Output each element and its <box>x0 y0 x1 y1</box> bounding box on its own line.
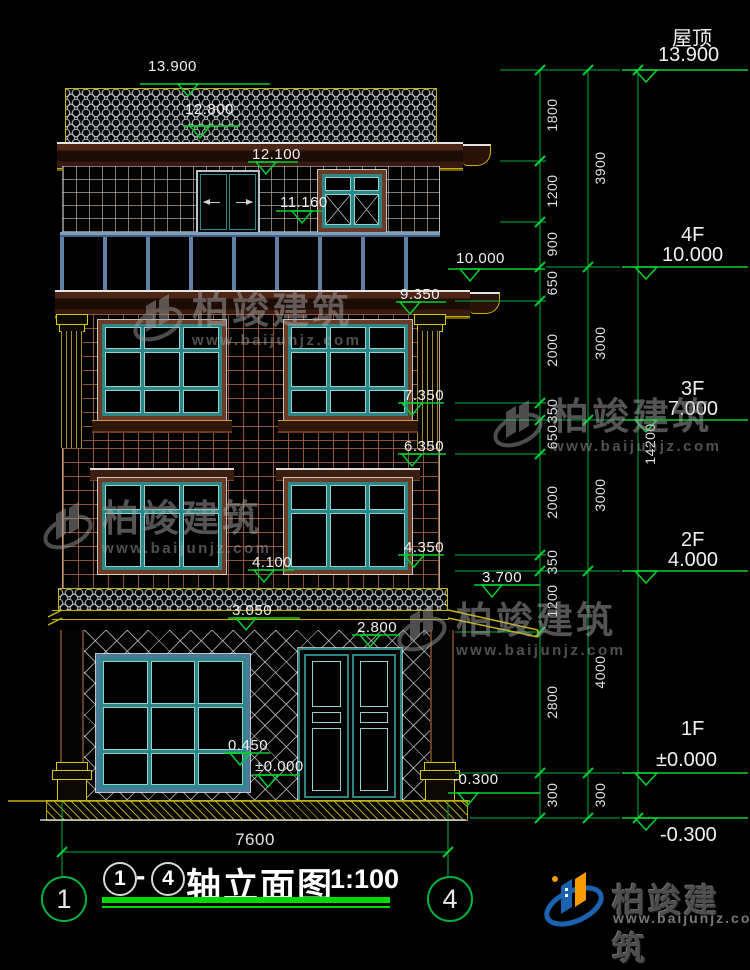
elev-label-minus0300: -0.300 <box>453 771 499 788</box>
grid-bubble-1: 1 <box>41 876 87 922</box>
dim-outer-3: 4000 <box>592 655 608 688</box>
elev-label-3050: 3.050 <box>232 602 272 619</box>
dim-inner-7: 2000 <box>544 485 560 518</box>
title-underline-thick <box>102 897 390 903</box>
floor-ground-elev: -0.300 <box>660 824 717 847</box>
grid-bubble-4: 4 <box>427 876 473 922</box>
dim-inner-10: 2800 <box>544 685 560 718</box>
title-axis-end: 4 <box>151 862 185 896</box>
elev-label-2800: 2.800 <box>357 619 397 636</box>
watermark-1: 柏竣建筑 www.baijunjz.com <box>132 290 361 350</box>
title-axis-dash: - <box>136 860 145 892</box>
watermark-3: 柏竣建筑 www.baijunjz.com <box>42 498 271 558</box>
dim-inner-8: 350 <box>544 550 560 575</box>
dim-outer-4: 300 <box>592 783 608 808</box>
dim-outer-1: 3000 <box>592 326 608 359</box>
dim-inner-3: 650 <box>544 271 560 296</box>
elev-label-9350: 9.350 <box>400 286 440 303</box>
title-axis-start: 1 <box>103 862 137 896</box>
floor-2f-elev: 4.000 <box>668 549 718 572</box>
elev-label-4350: 4.350 <box>404 539 444 556</box>
watermark-4: 柏竣建筑 www.baijunjz.com <box>396 600 625 660</box>
floor-1f-name: 1F <box>681 718 704 741</box>
dim-inner-11: 300 <box>544 783 560 808</box>
elev-label-11160: 11.160 <box>280 194 328 211</box>
drawing-scale: 1:100 <box>330 864 399 895</box>
floor-4f-elev: 10.000 <box>662 244 723 267</box>
floor-roof-elev: 13.900 <box>658 44 719 67</box>
dim-inner-4: 2000 <box>544 333 560 366</box>
watermark-logo-icon <box>492 396 544 456</box>
elev-label-3700: 3.700 <box>482 569 522 586</box>
elev-label-7350: 7.350 <box>404 387 444 404</box>
watermark-logo-icon <box>132 290 184 350</box>
dim-inner-0: 1800 <box>544 98 560 131</box>
title-underline-thin <box>102 906 390 908</box>
watermark-logo-icon <box>396 600 448 660</box>
dim-outer-2: 3000 <box>592 478 608 511</box>
elev-label-6350: 6.350 <box>404 438 444 455</box>
dimension-linework <box>0 0 750 941</box>
cad-elevation-canvas: { "drawing": { "title_block": {"axis_sta… <box>0 0 750 941</box>
dim-bottom-width: 7600 <box>235 830 275 850</box>
elev-label-10000: 10.000 <box>456 250 505 267</box>
elev-label-12100: 12.100 <box>252 146 301 163</box>
dim-outer-0: 3900 <box>592 151 608 184</box>
brand-logo-url: www.baijunjz.com <box>613 910 750 926</box>
brand-logo-icon <box>542 868 606 932</box>
watermark-2: 柏竣建筑 www.baijunjz.com <box>492 396 721 456</box>
dim-inner-2: 900 <box>544 232 560 257</box>
elev-label-12800: 12.800 <box>185 101 234 118</box>
floor-1f-elev: ±0.000 <box>656 749 717 772</box>
dim-inner-1: 1200 <box>544 174 560 207</box>
watermark-logo-icon <box>42 498 94 558</box>
elev-label-0000: ±0.000 <box>255 758 304 775</box>
elev-label-0450: 0.450 <box>228 737 268 754</box>
elev-label-13900: 13.900 <box>148 58 197 75</box>
